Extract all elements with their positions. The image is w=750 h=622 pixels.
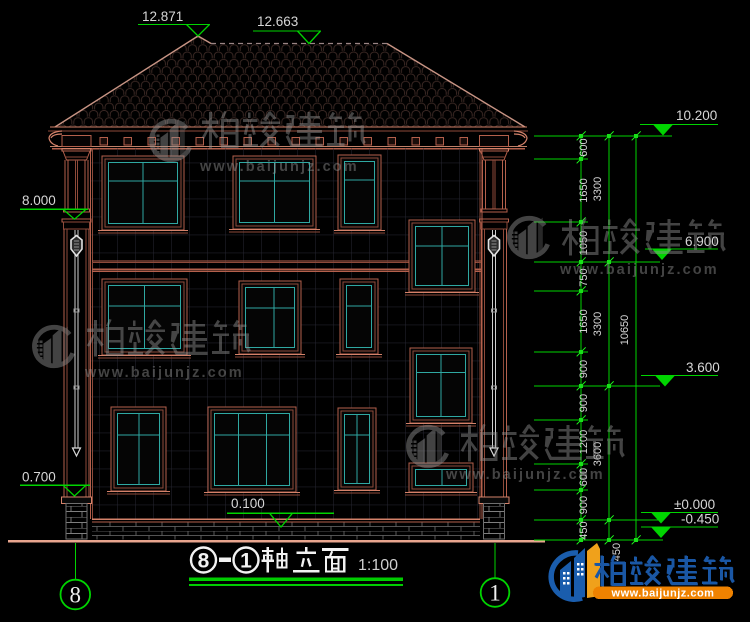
svg-text:1: 1 — [489, 581, 501, 606]
svg-text:1: 1 — [240, 550, 252, 573]
svg-text:8: 8 — [70, 583, 82, 608]
svg-text:1:100: 1:100 — [358, 557, 398, 574]
svg-text:0.100: 0.100 — [231, 496, 265, 511]
svg-text:±0.000: ±0.000 — [674, 497, 715, 512]
svg-text:1200: 1200 — [578, 430, 590, 454]
svg-text:-0.450: -0.450 — [681, 512, 719, 527]
svg-text:www.baijunjz.com: www.baijunjz.com — [445, 467, 605, 483]
svg-text:www.baijunjz.com: www.baijunjz.com — [611, 588, 715, 600]
svg-text:8: 8 — [198, 550, 210, 573]
svg-text:www.baijunjz.com: www.baijunjz.com — [559, 262, 719, 278]
svg-text:600: 600 — [578, 138, 590, 156]
svg-text:6.900: 6.900 — [685, 234, 719, 249]
svg-text:8.000: 8.000 — [22, 193, 56, 208]
svg-text:10650: 10650 — [619, 315, 631, 346]
svg-text:12.871: 12.871 — [142, 9, 183, 24]
svg-text:www.baijunjz.com: www.baijunjz.com — [199, 159, 359, 175]
svg-text:900: 900 — [578, 496, 590, 514]
svg-text:1650: 1650 — [578, 309, 590, 333]
svg-text:10.200: 10.200 — [676, 108, 717, 123]
svg-text:3300: 3300 — [592, 312, 604, 336]
svg-text:12.663: 12.663 — [257, 14, 298, 29]
svg-text:3300: 3300 — [592, 177, 604, 201]
svg-text:450: 450 — [578, 521, 590, 539]
svg-text:0.700: 0.700 — [22, 470, 56, 485]
svg-text:900: 900 — [578, 360, 590, 378]
svg-text:3.600: 3.600 — [686, 360, 720, 375]
svg-text:www.baijunjz.com: www.baijunjz.com — [84, 365, 244, 381]
svg-text:1650: 1650 — [578, 178, 590, 202]
svg-text:900: 900 — [578, 394, 590, 412]
